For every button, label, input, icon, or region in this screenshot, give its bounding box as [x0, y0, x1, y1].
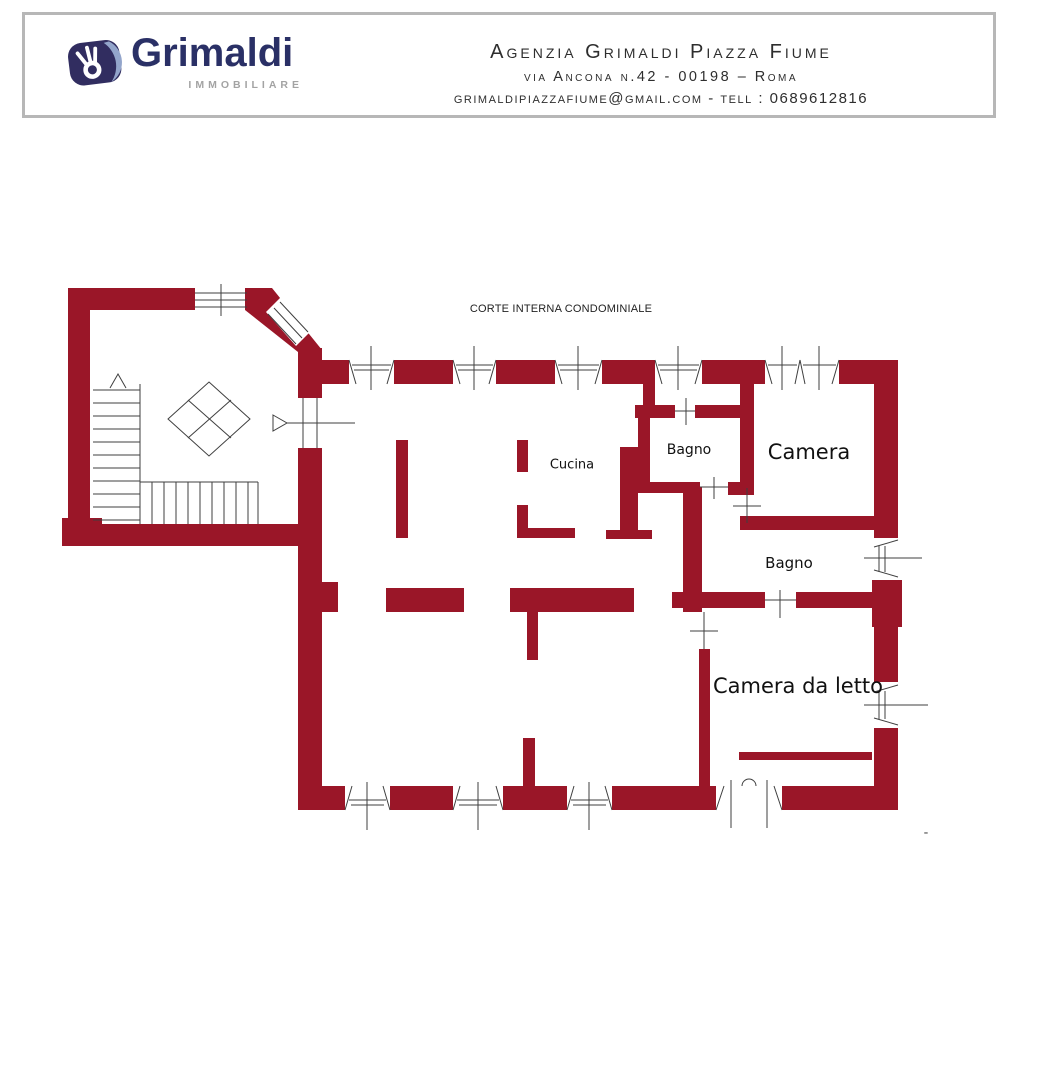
room-label-cucina: Cucina [550, 458, 594, 473]
room-label-bagno-2: Bagno [765, 554, 813, 572]
entrance-door [273, 398, 355, 448]
courtyard-label: CORTE INTERNA CONDOMINIALE [470, 303, 652, 315]
room-label-bagno-1: Bagno [667, 442, 712, 458]
entrance-arrow-icon [273, 415, 287, 431]
page-mark: - [924, 826, 929, 841]
room-label-camera: Camera [768, 440, 850, 464]
stairs-up-arrow [110, 374, 126, 388]
elevator [168, 382, 250, 456]
apartment-outer-walls [298, 348, 902, 810]
stairs [93, 374, 258, 524]
stairwell-window [195, 284, 247, 316]
floor-plan [0, 0, 1059, 1085]
room-label-camera-da-letto: Camera da letto [713, 674, 883, 698]
bed-symbol [739, 752, 872, 760]
